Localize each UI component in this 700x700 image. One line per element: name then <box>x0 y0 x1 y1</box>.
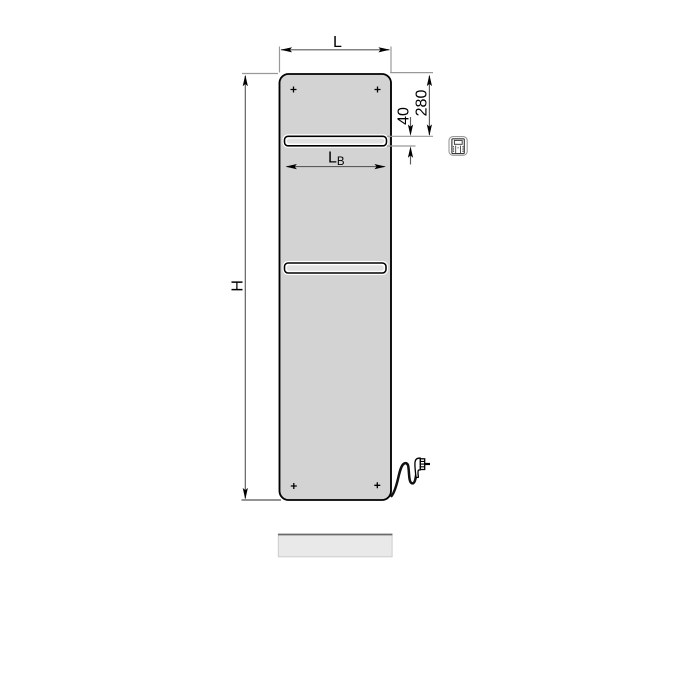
svg-text:H: H <box>230 280 247 292</box>
svg-text:280: 280 <box>414 90 431 117</box>
svg-text:40: 40 <box>396 107 413 125</box>
svg-text:L: L <box>333 34 342 51</box>
